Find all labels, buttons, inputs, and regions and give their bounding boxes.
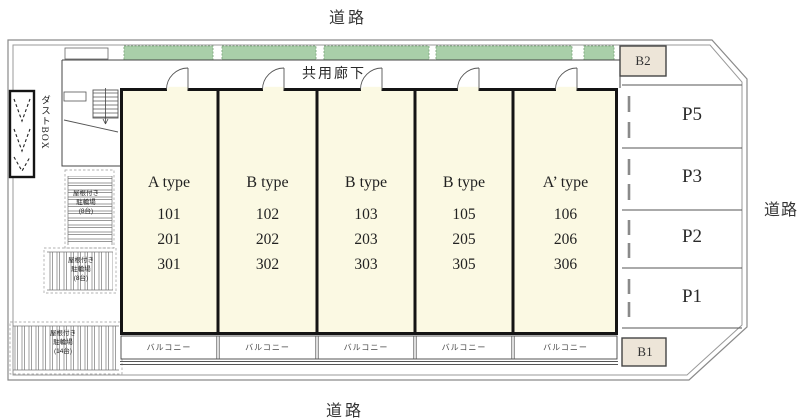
- room-number: 302: [218, 252, 317, 277]
- planting-strips: [124, 46, 614, 60]
- room-number: 103: [317, 202, 415, 227]
- unit-type-label: B type: [218, 174, 317, 192]
- room-number: 201: [120, 227, 218, 252]
- unit-type-label: A type: [120, 174, 218, 192]
- unit-type-label: A’ type: [513, 174, 618, 192]
- room-number: 306: [513, 252, 618, 277]
- balcony-label: バルコニー: [218, 342, 317, 353]
- parking-stall-p3: P3: [652, 166, 732, 188]
- unit-col-101: A type 101 201 301: [120, 88, 218, 335]
- unit-col-103: B type 103 203 303: [317, 88, 415, 335]
- dust-box: [10, 91, 34, 177]
- bike-label-line: (14台): [40, 347, 86, 356]
- unit-type-label: B type: [317, 174, 415, 192]
- parking-stall-p5: P5: [652, 104, 732, 126]
- unit-col-106: A’ type 106 206 306: [513, 88, 618, 335]
- bike-parking-upper-label: 屋根付き 駐輪場 (8台): [64, 189, 108, 216]
- unit-room-numbers: 106 206 306: [513, 202, 618, 277]
- balcony-label: バルコニー: [317, 342, 415, 353]
- bike-label-line: (8台): [58, 274, 104, 283]
- staircase: [64, 88, 118, 132]
- dust-box-label: ダストBOX: [37, 95, 51, 181]
- balcony-label: バルコニー: [415, 342, 513, 353]
- marker-b1-label: B1: [622, 344, 668, 360]
- room-number: 301: [120, 252, 218, 277]
- bike-label-line: 屋根付き: [40, 329, 86, 338]
- road-label-top: 道路: [308, 4, 388, 28]
- marker-b2-label: B2: [620, 53, 666, 69]
- parking-stall-p2: P2: [652, 226, 732, 248]
- bike-label-line: 屋根付き: [58, 256, 104, 265]
- meter-box: [64, 92, 86, 101]
- unit-room-numbers: 105 205 305: [415, 202, 513, 277]
- unit-col-105: B type 105 205 305: [415, 88, 513, 335]
- bike-parking-lower-label: 屋根付き 駐輪場 (14台): [40, 329, 86, 356]
- unit-type-label: B type: [415, 174, 513, 192]
- room-number: 202: [218, 227, 317, 252]
- unit-room-numbers: 103 203 303: [317, 202, 415, 277]
- room-number: 303: [317, 252, 415, 277]
- room-number: 105: [415, 202, 513, 227]
- room-number: 203: [317, 227, 415, 252]
- room-number: 206: [513, 227, 618, 252]
- road-label-bottom: 道路: [305, 397, 385, 420]
- entrance-canopy: [65, 48, 108, 59]
- bike-label-line: 駐輪場: [58, 265, 104, 274]
- bike-label-line: 駐輪場: [64, 198, 108, 207]
- room-number: 205: [415, 227, 513, 252]
- bike-parking-middle-label: 屋根付き 駐輪場 (8台): [58, 256, 104, 283]
- unit-col-102: B type 102 202 302: [218, 88, 317, 335]
- bike-label-line: (8台): [64, 207, 108, 216]
- room-number: 102: [218, 202, 317, 227]
- room-number: 305: [415, 252, 513, 277]
- balcony-label: バルコニー: [120, 342, 218, 353]
- unit-room-numbers: 102 202 302: [218, 202, 317, 277]
- corridor-label: 共用廊下: [292, 63, 376, 83]
- site-plan: 道路 道路 道路 共用廊下 A type 101 201 301 B type …: [0, 0, 800, 420]
- unit-room-numbers: 101 201 301: [120, 202, 218, 277]
- parking-stall-p1: P1: [652, 286, 732, 308]
- bike-label-line: 屋根付き: [64, 189, 108, 198]
- room-number: 101: [120, 202, 218, 227]
- room-number: 106: [513, 202, 618, 227]
- bike-label-line: 駐輪場: [40, 338, 86, 347]
- balcony-label: バルコニー: [513, 342, 618, 353]
- road-label-right: 道路: [761, 196, 800, 220]
